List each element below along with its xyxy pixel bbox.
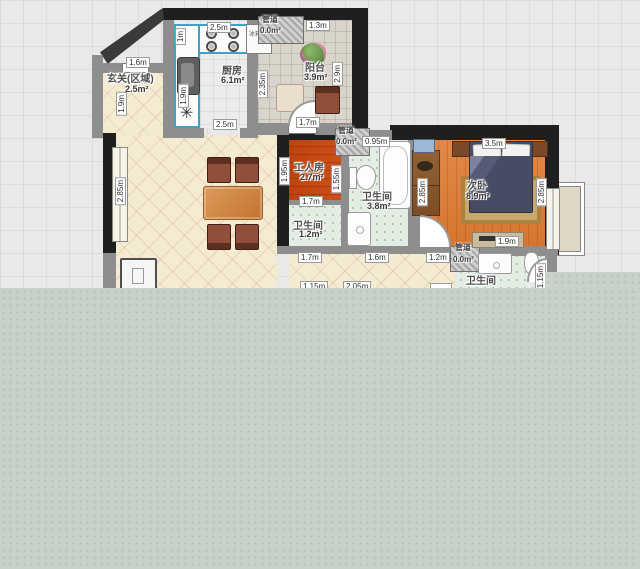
room-area-bathroom-middle: 3.8m² xyxy=(367,201,391,211)
dimension-label: 2.5m xyxy=(213,119,237,130)
bedroom-window[interactable] xyxy=(546,188,560,250)
room-area-bedroom: 8.9m² xyxy=(466,191,490,201)
stove-burner xyxy=(206,41,217,52)
dimension-label: 3.5m xyxy=(482,138,506,149)
dimension-label: 2.85m xyxy=(115,177,126,205)
bottom-gray-overlay-step xyxy=(545,272,640,289)
room-label-bedroom: 次卧 xyxy=(467,177,487,192)
right-bath-basin[interactable] xyxy=(478,253,512,274)
pipe-label: 管道 xyxy=(262,14,278,25)
floor-plan-canvas[interactable]: ✳ 冰箱 xyxy=(0,0,640,569)
wall-balcony-right[interactable] xyxy=(352,8,368,138)
basin-drain xyxy=(493,262,500,269)
dimension-label: 1.9m xyxy=(495,236,519,247)
room-label-bathroom-right: 卫生间 xyxy=(466,272,496,287)
dimension-label: 1.7m xyxy=(296,117,320,128)
wall-diagonal[interactable] xyxy=(100,8,164,64)
pipe-area: 0.0m² xyxy=(336,137,357,146)
shower-drain xyxy=(356,226,364,234)
bottom-gray-overlay xyxy=(0,288,640,569)
pipe-area: 0.0m² xyxy=(260,26,281,35)
dimension-label: 1.9m xyxy=(116,92,127,116)
wardrobe-item xyxy=(417,161,433,171)
dimension-label: 0.95m xyxy=(362,136,390,147)
wall-bedroom-top[interactable] xyxy=(390,125,558,140)
dimension-label: 1.7m xyxy=(299,196,323,207)
shower-basin[interactable] xyxy=(347,212,371,246)
wall-kitchen-bottom-right[interactable] xyxy=(240,128,258,138)
pipe-label: 管道 xyxy=(338,125,354,136)
dimension-label: 2.9m xyxy=(332,62,343,86)
wall-kitchen-left[interactable] xyxy=(163,20,174,138)
pipe-area: 0.0m² xyxy=(453,255,474,264)
dimension-label: 1.55m xyxy=(331,165,342,193)
room-area-worker-room: 2.7m² xyxy=(300,172,324,182)
room-area-balcony: 3.9m² xyxy=(304,72,328,82)
dining-chair[interactable] xyxy=(235,224,259,250)
room-area-bathroom-small: 1.2m² xyxy=(299,229,323,239)
dimension-label: 2.85m xyxy=(536,178,547,206)
bedroom-blue-cabinet[interactable] xyxy=(413,139,435,153)
room-area-kitchen: 6.1m² xyxy=(221,75,245,85)
stove-burner xyxy=(228,41,239,52)
dimension-label: 1.3m xyxy=(306,20,330,31)
dimension-label: 2.85m xyxy=(417,178,428,206)
dimension-label: 1m xyxy=(175,28,186,45)
dimension-label: 1.6m xyxy=(365,252,389,263)
pipe-label: 管道 xyxy=(455,242,471,253)
dimension-label: 2.35m xyxy=(257,70,268,98)
dining-chair[interactable] xyxy=(207,224,231,250)
dimension-label: 1.7m xyxy=(298,252,322,263)
room-area-entrance: 2.5m² xyxy=(125,84,149,94)
wall-kitchen-bottom-left[interactable] xyxy=(163,128,204,138)
wall-living-left-lower[interactable] xyxy=(103,253,116,288)
dimension-label: 1.95m xyxy=(279,157,290,185)
balcony-seat-brown[interactable] xyxy=(315,86,340,114)
dimension-label: 2.5m xyxy=(207,22,231,33)
dimension-label: 1.2m xyxy=(426,252,450,263)
wall-balcony-bottom-left[interactable] xyxy=(258,123,289,135)
dining-table[interactable] xyxy=(203,186,263,220)
dimension-label: 1.6m xyxy=(126,57,150,68)
appliance-detail xyxy=(132,268,144,284)
dimension-label: 1.9m xyxy=(178,84,189,108)
room-label-entrance: 玄关(区域) xyxy=(107,70,154,85)
wall-living-worker[interactable] xyxy=(277,126,289,253)
dining-chair[interactable] xyxy=(207,157,231,183)
dining-chair[interactable] xyxy=(235,157,259,183)
